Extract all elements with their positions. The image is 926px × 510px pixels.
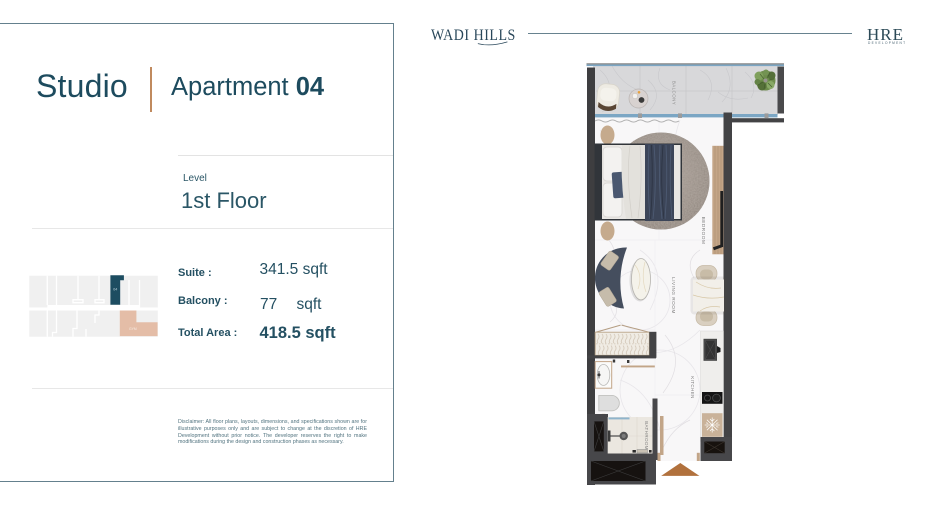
svg-text:BATHROOM: BATHROOM — [644, 421, 649, 450]
svg-text:04: 04 — [113, 288, 117, 292]
svg-text:LIVING ROOM: LIVING ROOM — [671, 277, 676, 314]
svg-text:KITCHEN: KITCHEN — [690, 376, 695, 399]
svg-text:BEDROOM: BEDROOM — [701, 217, 706, 245]
svg-text:GYM: GYM — [129, 327, 137, 331]
svg-text:BALCONY: BALCONY — [672, 81, 677, 105]
